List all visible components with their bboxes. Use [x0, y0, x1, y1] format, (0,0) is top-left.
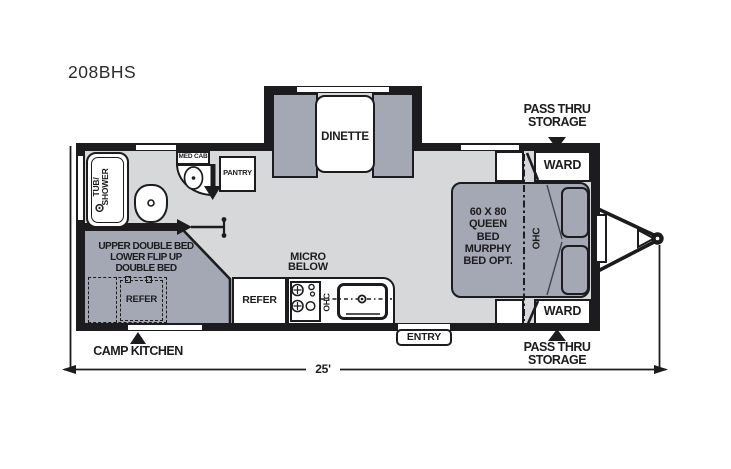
nightstand-top: [495, 151, 524, 182]
pillow-top: [561, 187, 589, 238]
dinette-slideout-wall-left: [264, 86, 272, 148]
entry-label: ENTRY: [396, 332, 452, 343]
tub-shower-label: TUB/ SHOWER: [92, 152, 122, 222]
camp-refer-divider: [116, 277, 117, 323]
micro-below-label: MICRO BELOW: [280, 252, 336, 273]
tongue-frame-box: [595, 214, 607, 263]
dinette-bench-left: [272, 93, 318, 178]
kitchen-ohc-label: OHC: [323, 290, 334, 316]
window-top-bath: [136, 145, 176, 150]
nightstand-bottom: [495, 299, 524, 325]
camp-kitchen-label: CAMP KITCHEN: [83, 345, 193, 358]
dinette-label: DINETTE: [316, 131, 374, 143]
bunk-label: UPPER DOUBLE BED LOWER FLIP UP DOUBLE BE…: [90, 242, 202, 274]
window-top-bed: [461, 145, 519, 150]
pillow-bottom: [561, 245, 589, 295]
camp-refer-hinge-right: [146, 276, 152, 283]
ward-bottom-label: WARD: [534, 305, 591, 318]
pantry-label: PANTRY: [219, 169, 256, 177]
floorplan-canvas: 208BHS DINETTE TUB/ SHOWER MED CAB PANTR…: [0, 0, 731, 469]
dim-arrow-right-icon: [654, 365, 668, 374]
tongue-jack-icon: [638, 230, 654, 247]
dinette-slideout-wall-right: [414, 86, 422, 148]
bedroom-ohc-label: OHC: [533, 224, 546, 254]
length-label: 25': [306, 363, 340, 378]
queen-bed-label: 60 X 80 QUEEN BED MURPHY BED OPT.: [455, 206, 521, 268]
window-left-tub: [78, 156, 83, 220]
pass-thru-top-label: PASS THRU STORAGE: [512, 103, 602, 129]
window-bottom-bunk: [128, 325, 202, 330]
pass-thru-bottom-label: PASS THRU STORAGE: [512, 341, 602, 367]
camp-kitchen-arrow-icon: [130, 332, 146, 344]
med-cab-label: MED CAB: [176, 154, 210, 161]
camp-refer-label: REFER: [120, 295, 163, 305]
hitch-coupler-dot: [656, 237, 660, 241]
model-number: 208BHS: [68, 62, 136, 83]
toilet: [134, 184, 168, 223]
ward-top-label: WARD: [534, 159, 591, 172]
stove: [290, 281, 321, 322]
dinette-window: [297, 87, 389, 92]
hitch-coupler-icon: [651, 232, 663, 244]
dim-arrow-left-icon: [62, 365, 76, 374]
camp-refer-hinge-left: [125, 276, 131, 283]
sink: [337, 283, 388, 320]
dinette-bench-right: [372, 93, 414, 178]
refer-label: REFER: [232, 295, 287, 306]
